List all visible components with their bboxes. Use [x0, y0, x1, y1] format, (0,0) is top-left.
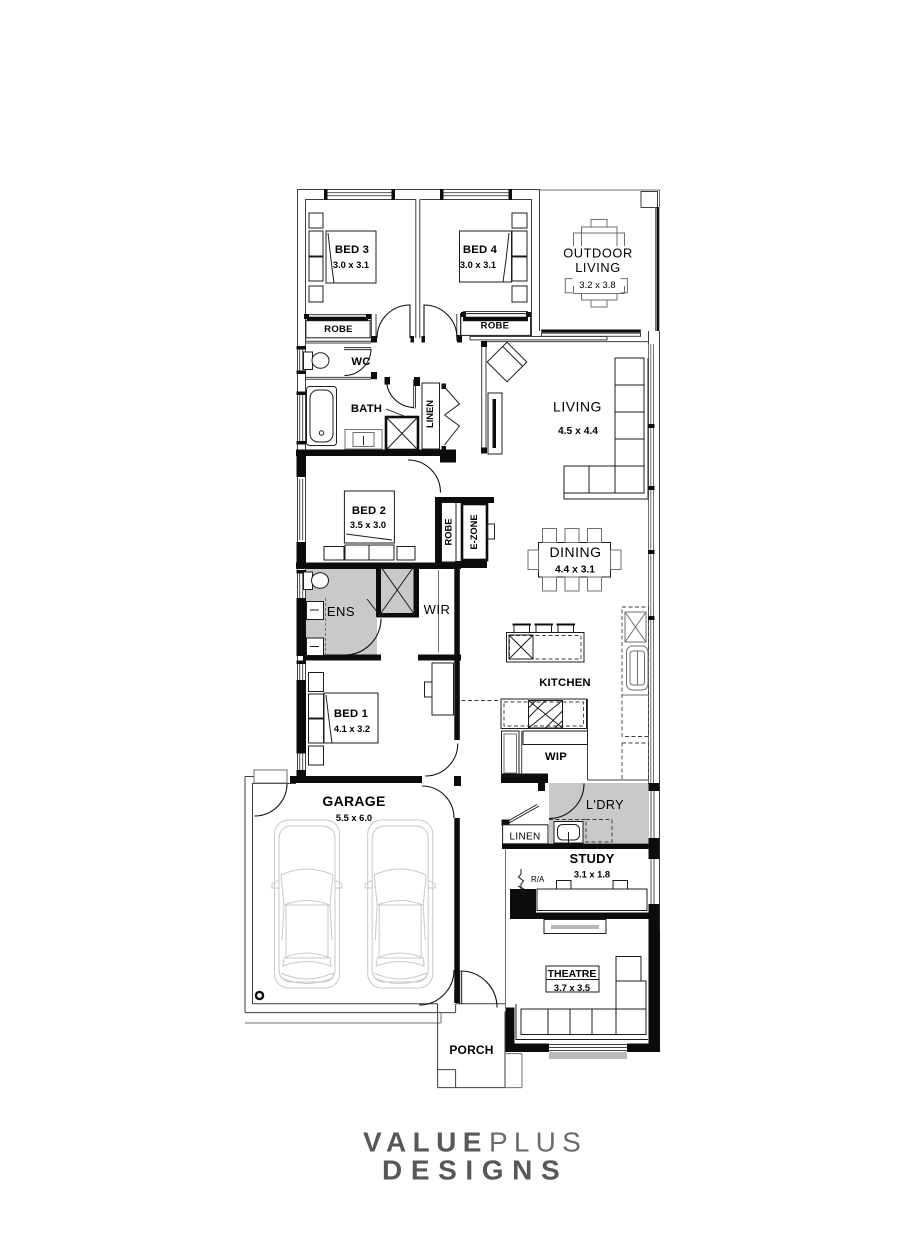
- svg-text:3.0 x 3.1: 3.0 x 3.1: [333, 260, 369, 270]
- svg-text:PORCH: PORCH: [449, 1043, 493, 1057]
- svg-text:WC: WC: [351, 356, 370, 368]
- svg-text:THEATRE: THEATRE: [548, 968, 597, 980]
- svg-text:4.4 x 3.1: 4.4 x 3.1: [555, 565, 595, 576]
- svg-text:WIR: WIR: [424, 602, 451, 617]
- svg-text:3.0 x 3.1: 3.0 x 3.1: [460, 260, 496, 270]
- svg-text:ROBE: ROBE: [444, 519, 454, 546]
- svg-text:L'DRY: L'DRY: [586, 798, 624, 812]
- svg-text:STUDY: STUDY: [569, 851, 614, 866]
- svg-text:LIVING: LIVING: [553, 399, 602, 415]
- svg-text:LINEN: LINEN: [425, 400, 435, 428]
- svg-text:ROBE: ROBE: [481, 321, 510, 332]
- svg-text:OUTDOOR: OUTDOOR: [563, 246, 633, 261]
- svg-text:BATH: BATH: [351, 403, 382, 415]
- svg-text:BED 2: BED 2: [352, 505, 386, 517]
- svg-text:BED 1: BED 1: [334, 708, 368, 720]
- svg-text:KITCHEN: KITCHEN: [539, 677, 591, 689]
- svg-text:WIP: WIP: [545, 751, 567, 763]
- svg-text:VALUE: VALUE: [363, 1127, 488, 1158]
- svg-text:DINING: DINING: [550, 544, 602, 560]
- svg-text:R/A: R/A: [531, 875, 545, 884]
- svg-text:4.5 x 4.4: 4.5 x 4.4: [558, 426, 598, 437]
- svg-text:4.1 x 3.2: 4.1 x 3.2: [334, 724, 370, 734]
- svg-text:ENS: ENS: [327, 604, 355, 619]
- svg-text:3.7 x 3.5: 3.7 x 3.5: [554, 983, 590, 993]
- svg-text:5.5 x 6.0: 5.5 x 6.0: [336, 813, 372, 823]
- svg-text:3.1 x 1.8: 3.1 x 1.8: [574, 870, 610, 880]
- svg-text:3.2 x 3.8: 3.2 x 3.8: [579, 280, 615, 291]
- svg-text:PLUS: PLUS: [489, 1127, 587, 1158]
- svg-text:BED 4: BED 4: [463, 244, 498, 256]
- svg-text:GARAGE: GARAGE: [322, 793, 385, 809]
- svg-text:BED 3: BED 3: [335, 244, 369, 256]
- svg-text:3.5 x 3.0: 3.5 x 3.0: [350, 520, 386, 530]
- svg-text:E-ZONE: E-ZONE: [469, 514, 479, 549]
- svg-text:LIVING: LIVING: [575, 260, 621, 275]
- svg-text:ROBE: ROBE: [324, 324, 353, 335]
- svg-text:LINEN: LINEN: [510, 832, 541, 843]
- svg-text:DESIGNS: DESIGNS: [382, 1155, 568, 1186]
